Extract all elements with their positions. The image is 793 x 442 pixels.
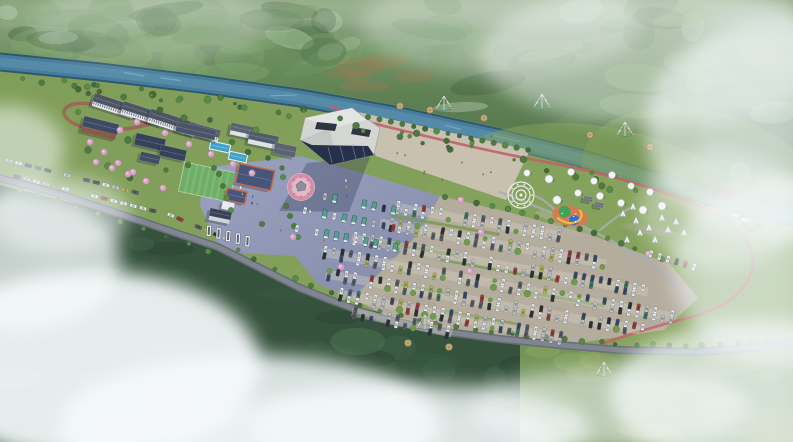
tree xyxy=(245,149,251,155)
tree xyxy=(141,226,145,230)
tree xyxy=(286,113,291,118)
car xyxy=(480,295,484,302)
car xyxy=(387,278,391,285)
tree xyxy=(489,330,494,335)
parking-bush xyxy=(571,279,577,285)
parking-bush xyxy=(577,294,581,298)
tree xyxy=(283,203,289,209)
tree xyxy=(598,183,605,190)
blossom-tree xyxy=(467,268,473,274)
tree xyxy=(365,114,371,120)
tree xyxy=(422,126,428,132)
tree xyxy=(502,142,508,148)
car xyxy=(466,313,470,320)
car xyxy=(532,251,536,258)
tree xyxy=(259,221,265,227)
blossom-tree xyxy=(134,119,140,125)
car xyxy=(483,316,487,323)
car xyxy=(458,230,462,237)
tree xyxy=(62,78,67,83)
tree xyxy=(251,257,256,262)
bus xyxy=(235,233,240,244)
parking-bush xyxy=(514,248,521,255)
parking-bush xyxy=(415,223,421,229)
parking-bush xyxy=(410,325,416,331)
tree xyxy=(241,105,247,111)
parking-bush xyxy=(488,298,492,302)
blossom-tree xyxy=(101,149,107,155)
car xyxy=(538,312,542,319)
car xyxy=(474,280,478,287)
tree xyxy=(204,96,211,103)
tree xyxy=(75,109,81,115)
round-hut xyxy=(587,132,594,139)
round-hut xyxy=(427,107,434,114)
tree xyxy=(491,140,497,146)
blossom-tree xyxy=(208,151,214,157)
tree xyxy=(562,336,568,342)
car xyxy=(404,241,408,248)
car xyxy=(407,221,411,228)
car xyxy=(491,236,495,243)
pedestrian xyxy=(345,179,346,181)
car xyxy=(619,300,623,307)
tree xyxy=(139,87,144,92)
parking-bush xyxy=(490,326,494,330)
blossom-tree xyxy=(143,178,149,184)
tree xyxy=(157,107,163,113)
parking-bush xyxy=(410,290,416,296)
car xyxy=(332,247,336,254)
car xyxy=(398,220,402,227)
pedestrian xyxy=(310,210,311,212)
car xyxy=(487,303,491,310)
parking-bush xyxy=(327,268,333,274)
parking-bush xyxy=(514,229,519,234)
tree xyxy=(39,80,45,86)
car xyxy=(513,268,517,275)
tree xyxy=(181,115,188,122)
tree xyxy=(590,171,594,175)
pedestrian xyxy=(252,195,253,197)
tree xyxy=(635,343,640,348)
tree xyxy=(218,95,224,101)
car xyxy=(623,327,627,334)
parking-bush xyxy=(396,306,403,313)
car xyxy=(500,285,504,292)
tree xyxy=(236,248,240,252)
parking-bush xyxy=(600,264,605,269)
tree xyxy=(479,138,485,144)
car xyxy=(498,326,502,333)
tree xyxy=(413,130,420,137)
car xyxy=(558,255,562,262)
parking-bush xyxy=(493,279,497,283)
tree xyxy=(442,194,448,200)
car xyxy=(557,228,561,235)
car xyxy=(459,271,463,278)
pedestrian xyxy=(252,202,253,204)
tree xyxy=(224,195,230,201)
tree xyxy=(446,145,450,149)
blossom-tree xyxy=(130,169,136,175)
cloud xyxy=(640,150,793,270)
tree xyxy=(276,110,281,115)
tree xyxy=(470,141,475,146)
tree xyxy=(216,171,222,177)
pedestrian xyxy=(240,186,241,188)
tree xyxy=(84,84,90,90)
car xyxy=(381,263,385,270)
car xyxy=(508,240,512,247)
tree xyxy=(534,215,539,220)
pedestrian xyxy=(257,203,258,205)
car xyxy=(397,226,401,233)
tree xyxy=(577,226,583,232)
car xyxy=(357,252,361,259)
car xyxy=(398,266,402,273)
parking-bush xyxy=(437,288,442,293)
parking-bush xyxy=(560,291,565,296)
car xyxy=(505,226,509,233)
tree xyxy=(280,174,286,180)
car xyxy=(430,206,434,213)
car xyxy=(488,263,492,270)
tree xyxy=(411,124,416,129)
tree xyxy=(400,121,405,126)
tree xyxy=(525,147,530,152)
tree xyxy=(95,83,100,88)
car xyxy=(339,255,343,262)
car xyxy=(387,238,391,245)
car xyxy=(424,271,428,278)
parking-bush xyxy=(483,236,487,240)
blossom-tree xyxy=(186,141,192,147)
blossom-tree xyxy=(458,197,464,203)
car xyxy=(396,200,400,207)
blossom-tree xyxy=(160,185,166,191)
car xyxy=(432,306,436,313)
car xyxy=(412,210,416,217)
blossom-tree xyxy=(230,161,236,167)
tree xyxy=(505,206,510,211)
tree xyxy=(292,275,298,281)
tree xyxy=(329,290,334,295)
car xyxy=(602,297,606,304)
tree xyxy=(473,200,479,206)
tree xyxy=(613,342,617,346)
tree xyxy=(220,183,226,189)
bus xyxy=(226,230,231,241)
pedestrian xyxy=(323,239,324,241)
car xyxy=(514,301,518,308)
plaza-flower-medallion xyxy=(287,173,315,201)
blossom-tree xyxy=(249,170,255,176)
parking-bush xyxy=(446,217,451,222)
tree xyxy=(124,136,131,143)
car xyxy=(365,293,369,300)
tree xyxy=(408,134,412,138)
car xyxy=(442,267,446,274)
tree xyxy=(302,109,305,112)
parking-bush xyxy=(524,290,531,297)
pedestrian xyxy=(277,221,278,223)
pedestrian xyxy=(346,194,347,196)
tree xyxy=(520,156,527,163)
car xyxy=(482,242,486,249)
pedestrian xyxy=(280,229,281,231)
car xyxy=(424,224,428,231)
scene-svg: Aerial rendering of a riverside visitor … xyxy=(0,0,793,442)
tree xyxy=(308,283,314,289)
tree xyxy=(397,134,403,140)
bus xyxy=(206,225,211,236)
car xyxy=(589,321,593,328)
bus xyxy=(216,228,221,239)
tree xyxy=(97,89,102,94)
car xyxy=(555,315,559,322)
tree xyxy=(150,93,154,97)
parking-bush xyxy=(613,326,620,333)
tree xyxy=(352,122,359,129)
tree xyxy=(388,119,394,125)
tree xyxy=(84,146,91,153)
car xyxy=(475,233,479,240)
tree xyxy=(273,267,277,271)
car xyxy=(422,205,426,212)
car xyxy=(641,284,645,291)
round-hut xyxy=(405,340,412,347)
car xyxy=(462,298,466,305)
tree xyxy=(548,218,554,224)
car xyxy=(407,268,411,275)
car xyxy=(344,271,348,278)
bus xyxy=(245,236,250,247)
blossom-tree xyxy=(87,139,93,145)
parking-bush xyxy=(430,313,436,319)
tree xyxy=(446,131,450,135)
tree xyxy=(606,186,613,193)
car xyxy=(458,277,462,284)
car xyxy=(390,265,394,272)
tree xyxy=(164,168,169,173)
tree xyxy=(361,129,366,134)
tree xyxy=(211,165,216,170)
tree xyxy=(159,98,163,102)
car xyxy=(517,288,521,295)
tree xyxy=(176,98,181,103)
car xyxy=(618,307,622,314)
car xyxy=(631,289,635,296)
tree xyxy=(233,102,236,105)
car xyxy=(497,225,501,232)
parking-bush xyxy=(490,284,497,291)
tree xyxy=(187,242,191,246)
tree xyxy=(185,162,191,168)
tree xyxy=(618,240,624,246)
tree xyxy=(421,141,425,145)
tree xyxy=(457,134,462,139)
car xyxy=(446,289,450,296)
blossom-tree xyxy=(93,159,99,165)
car xyxy=(439,208,443,215)
pedestrian xyxy=(242,193,243,195)
parking-bush xyxy=(464,239,470,245)
tree xyxy=(265,155,270,160)
car xyxy=(473,214,477,221)
car xyxy=(429,286,433,293)
tree xyxy=(280,166,285,171)
car xyxy=(552,288,556,295)
tree xyxy=(228,207,234,213)
pedestrian xyxy=(346,186,347,188)
car xyxy=(404,281,408,288)
tree xyxy=(86,91,91,96)
tree xyxy=(433,128,439,134)
car xyxy=(445,255,449,262)
tree xyxy=(514,145,520,151)
car xyxy=(539,232,543,239)
blossom-tree xyxy=(290,234,296,240)
car xyxy=(507,220,511,227)
tree xyxy=(400,131,403,134)
car xyxy=(471,220,475,227)
tree xyxy=(253,127,259,133)
tree xyxy=(513,158,516,161)
blossom-tree xyxy=(109,165,115,171)
round-hut xyxy=(397,103,404,110)
blossom-tree xyxy=(117,127,123,133)
tree xyxy=(229,139,235,145)
tree xyxy=(75,86,81,92)
car xyxy=(525,243,529,250)
tree xyxy=(579,338,585,344)
car xyxy=(507,246,511,253)
tree xyxy=(605,236,610,241)
mandala-circle-feature xyxy=(508,182,534,208)
tree xyxy=(489,203,495,209)
tree xyxy=(287,213,293,219)
tree xyxy=(519,210,525,216)
tree xyxy=(205,249,211,255)
tree xyxy=(121,94,127,100)
car xyxy=(378,277,382,284)
car xyxy=(593,255,597,262)
tree xyxy=(599,339,604,344)
blossom-tree xyxy=(115,160,121,166)
tree xyxy=(207,117,212,122)
tree xyxy=(468,136,473,141)
tree xyxy=(20,76,24,80)
blossom-tree xyxy=(162,130,168,136)
pedestrian xyxy=(252,182,253,184)
round-hut xyxy=(446,344,453,351)
round-hut xyxy=(481,115,488,122)
tree xyxy=(633,246,637,250)
car xyxy=(633,282,637,289)
tree xyxy=(377,117,383,123)
tree xyxy=(337,116,342,121)
car xyxy=(436,294,440,301)
tree xyxy=(444,138,450,144)
tree xyxy=(544,168,549,173)
tree xyxy=(164,235,168,239)
aerial-render: Aerial rendering of a riverside visitor … xyxy=(0,0,793,442)
car xyxy=(406,308,410,315)
car xyxy=(598,316,602,323)
parking-bush xyxy=(440,275,446,281)
parking-bush xyxy=(384,285,390,291)
tree xyxy=(591,230,597,236)
